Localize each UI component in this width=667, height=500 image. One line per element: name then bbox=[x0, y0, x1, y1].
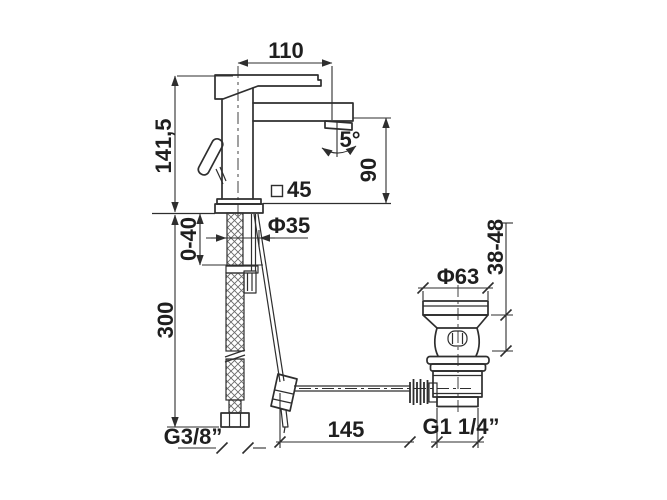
dim-height-above-deck: 141,5 bbox=[151, 76, 233, 212]
dim-label-hose-length: 300 bbox=[153, 302, 178, 339]
dim-deck-thickness: 0-40 bbox=[176, 214, 263, 265]
mounting-base bbox=[215, 199, 263, 213]
threaded-shank bbox=[227, 213, 243, 266]
dim-supply-thread: G3/8” bbox=[164, 424, 266, 454]
dim-label-rod-length: 145 bbox=[328, 417, 365, 442]
dim-body-section: 45 bbox=[272, 177, 312, 202]
horizontal-rod bbox=[294, 386, 471, 391]
waste-assembly bbox=[423, 285, 489, 413]
dim-aerator-angle: 5° bbox=[322, 122, 361, 157]
dim-label-waste-thread: G1 1/4” bbox=[422, 414, 499, 439]
square-section-symbol bbox=[272, 186, 283, 197]
mounting-nut bbox=[226, 266, 258, 273]
dim-rod-length: 145 bbox=[275, 393, 416, 448]
dim-label-flange-height-range: 38-48 bbox=[483, 219, 508, 275]
dim-label-outlet-height: 90 bbox=[356, 158, 381, 182]
dim-label-body-section: 45 bbox=[287, 177, 311, 202]
dim-label-height: 141,5 bbox=[151, 118, 176, 173]
waste-flange bbox=[423, 301, 488, 328]
handle-lever bbox=[215, 75, 321, 99]
dim-label-aerator-angle: 5° bbox=[339, 127, 360, 152]
spout bbox=[253, 103, 353, 121]
drawing-sheet: 110 141,5 300 0-40 Φ35 90 5° 45 bbox=[0, 0, 667, 500]
dim-label-deck-thickness: 0-40 bbox=[176, 217, 201, 261]
dim-label-flange-diameter: Φ63 bbox=[437, 264, 480, 289]
supply-hose bbox=[225, 273, 245, 413]
rod-linkage bbox=[271, 374, 297, 433]
dim-label-shank-diameter: Φ35 bbox=[268, 213, 311, 238]
dim-label-supply-thread: G3/8” bbox=[164, 424, 223, 449]
faucet-technical-drawing: 110 141,5 300 0-40 Φ35 90 5° 45 bbox=[0, 0, 667, 500]
waste-tailpiece bbox=[437, 397, 478, 407]
faucet-body bbox=[222, 88, 253, 199]
dim-waste-thread: G1 1/4” bbox=[422, 408, 499, 448]
dim-label-spout-reach: 110 bbox=[268, 38, 304, 63]
supply-hose-secondary bbox=[244, 214, 256, 293]
hose-hex-nut bbox=[221, 413, 249, 427]
